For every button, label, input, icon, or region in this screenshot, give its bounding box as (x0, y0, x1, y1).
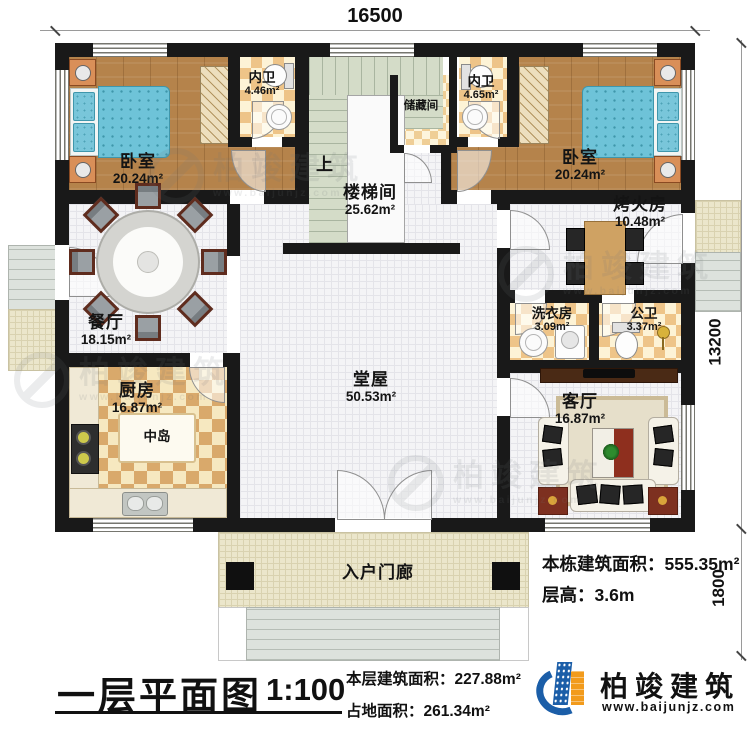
side-landing-left (8, 309, 58, 371)
footprint-value: 261.34m² (424, 703, 490, 720)
dining-chair (135, 183, 161, 209)
room-label-bedroom-right: 卧室 20.24m² (555, 148, 605, 182)
dining-chair (135, 315, 161, 341)
floor-area-line: 本层建筑面积：227.88m² (346, 667, 521, 689)
floor-height-value: 3.6m (595, 585, 635, 605)
wall (227, 204, 240, 256)
window (545, 518, 650, 532)
logo-building-orange (571, 671, 584, 705)
room-label-stair: 楼梯间 25.62m² (343, 183, 397, 217)
porch-steps (246, 607, 500, 661)
wall (227, 353, 240, 518)
dining-chair (201, 249, 227, 275)
nightstand (69, 156, 96, 183)
floor-plan: 卧室 20.24m² 内卫 4.46m² 储藏间 内卫 4.65m² 卧室 20… (0, 0, 750, 729)
nightstand (69, 59, 96, 86)
sofa-cushion (576, 484, 598, 505)
room-label-laundry: 洗衣房 3.09m² (532, 306, 573, 333)
kitchen-sink-basin (127, 496, 144, 511)
kitchen-sink-basin (146, 496, 163, 511)
floor-height-line: 层高：3.6m (542, 582, 634, 607)
floor-area-value: 227.88m² (455, 671, 521, 688)
stair-landing (309, 57, 443, 95)
wall (390, 75, 398, 153)
room-label-bath-right: 内卫 4.65m² (464, 74, 499, 101)
room-label-fire-room: 烤火房 10.48m² (613, 195, 667, 229)
floor-height-label: 层高： (542, 585, 595, 605)
sofa-cushion (542, 448, 563, 467)
wall (283, 243, 460, 254)
room-label-kitchen: 厨房 16.87m² (112, 381, 162, 415)
window (681, 70, 695, 160)
sofa-cushion (542, 425, 563, 444)
toilet (615, 331, 638, 359)
window (583, 43, 657, 57)
footprint-label: 占地面积： (346, 703, 424, 720)
window (330, 43, 414, 57)
wall (507, 43, 519, 147)
fire-room-table (584, 221, 626, 295)
room-label-dining: 餐厅 18.15m² (81, 313, 131, 347)
wall (55, 190, 309, 204)
window (93, 43, 167, 57)
wall (589, 303, 599, 363)
wall (228, 43, 240, 147)
wall (497, 204, 510, 518)
footprint-line: 占地面积：261.34m² (346, 699, 490, 721)
room-label-hall: 堂屋 50.53m² (346, 370, 396, 404)
title-scale: 1:100 (266, 672, 345, 708)
pillow (73, 92, 95, 121)
side-steps-left (8, 245, 58, 311)
fire-room-chair (566, 228, 585, 251)
closet-right (519, 66, 549, 144)
room-label-storage: 储藏间 (404, 100, 439, 113)
dimension-line-right (741, 40, 742, 660)
stair-up-label: 上 (316, 155, 334, 174)
sofa-cushion (653, 448, 674, 467)
room-label-bath-left: 内卫 4.46m² (245, 70, 280, 97)
dimension-line-top (40, 30, 710, 31)
bed-left (98, 86, 170, 158)
wall (441, 147, 451, 204)
logo-website: www.baijunjz.com (602, 700, 735, 714)
sink (266, 104, 292, 130)
side-table (538, 487, 568, 515)
room-label-bedroom-left: 卧室 20.24m² (113, 152, 163, 186)
porch-step-side (498, 607, 529, 661)
logo-brand: 柏竣建筑 (600, 665, 740, 705)
window (93, 518, 193, 532)
sofa-cushion (599, 484, 621, 505)
wall (295, 43, 309, 204)
sofa-cushion (653, 425, 674, 444)
dimension-side: 13200 (706, 318, 726, 365)
sink (462, 104, 488, 130)
window (681, 405, 695, 490)
plant (603, 444, 619, 460)
stove-burner (76, 430, 91, 445)
pillow (73, 123, 95, 152)
island-label: 中岛 (144, 429, 171, 444)
dimension-top: 16500 (330, 5, 420, 28)
window (55, 70, 69, 160)
porch-column (226, 562, 254, 590)
sofa-cushion (622, 484, 643, 504)
nightstand (654, 156, 681, 183)
total-area-value: 555.35m² (665, 554, 740, 574)
pillow (657, 92, 679, 121)
fire-room-chair (566, 262, 585, 285)
pillow (657, 123, 679, 152)
porch-step-side (218, 607, 248, 661)
logo-icon (538, 660, 594, 720)
side-table (648, 487, 678, 515)
porch-column (492, 562, 520, 590)
room-label-public-bath: 公卫 3.37m² (627, 306, 662, 333)
title-underline (55, 711, 342, 714)
room-label-living: 客厅 16.87m² (555, 392, 605, 426)
floor-area-label: 本层建筑面积： (346, 671, 455, 688)
total-area-label: 本栋建筑面积： (542, 554, 665, 574)
dining-chair (69, 249, 95, 275)
stove-burner (76, 451, 91, 466)
dining-table-center (137, 251, 159, 273)
room-label-porch: 入户门廊 (342, 563, 414, 582)
closet-left (200, 66, 230, 144)
fire-room-chair (625, 228, 644, 251)
washing-machine-door (561, 331, 579, 349)
side-steps-right (695, 252, 741, 312)
logo: 柏竣建筑 www.baijunjz.com (538, 660, 745, 722)
shower-stem (662, 337, 664, 350)
fire-room-chair (625, 262, 644, 285)
total-area-line: 本栋建筑面积：555.35m² (542, 551, 739, 576)
side-landing-right (695, 200, 741, 254)
nightstand (654, 59, 681, 86)
tv (583, 369, 635, 378)
